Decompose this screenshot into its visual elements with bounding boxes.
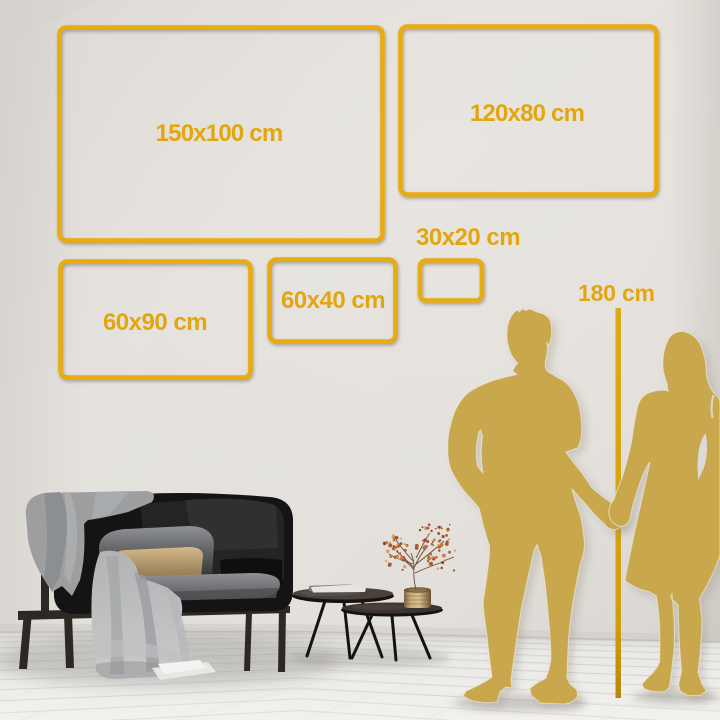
svg-text:180 cm: 180 cm <box>578 280 655 306</box>
svg-text:60x90 cm: 60x90 cm <box>103 309 207 336</box>
svg-text:150x100 cm: 150x100 cm <box>156 120 283 147</box>
svg-text:60x40 cm: 60x40 cm <box>281 287 385 314</box>
svg-text:30x20 cm: 30x20 cm <box>416 224 520 251</box>
svg-text:120x80 cm: 120x80 cm <box>470 100 584 127</box>
